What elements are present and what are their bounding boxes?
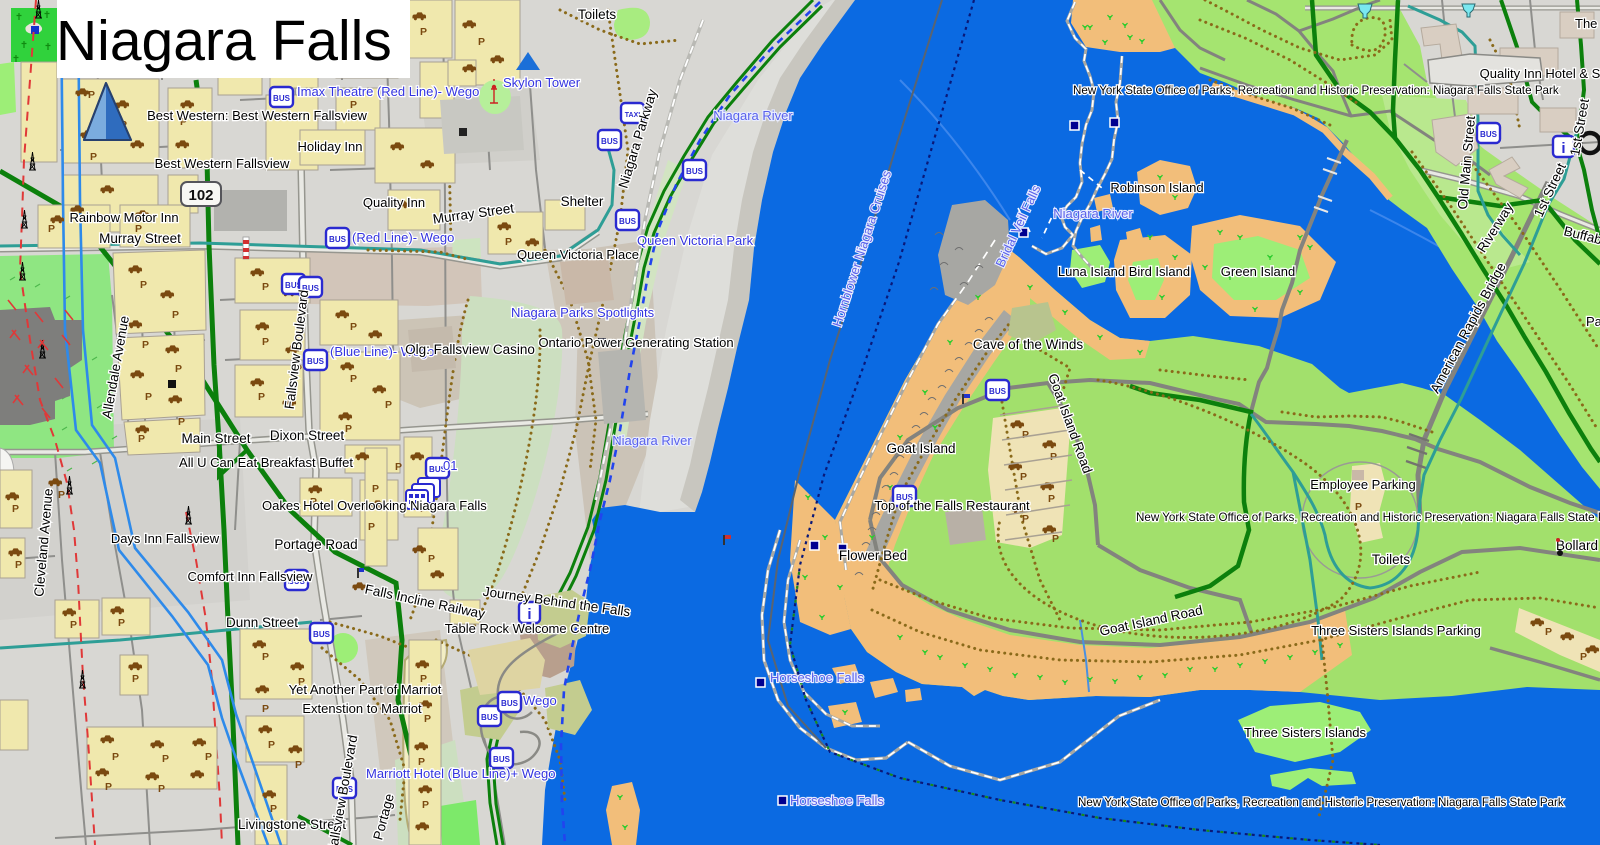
svg-text:Queen Victoria Park: Queen Victoria Park [637,233,754,248]
svg-text:P: P [262,336,269,348]
svg-text:P: P [422,799,429,811]
svg-text:P: P [175,363,182,375]
svg-text:The C: The C [1575,16,1600,31]
svg-text:(Red Line)- Wego: (Red Line)- Wego [352,230,454,245]
svg-text:Rainbow Motor Inn: Rainbow Motor Inn [69,210,178,225]
svg-text:Holiday Inn: Holiday Inn [297,139,362,154]
svg-text:P: P [138,433,145,445]
svg-text:P: P [1580,651,1587,663]
svg-text:Marriott Hotel (Blue Line)+ We: Marriott Hotel (Blue Line)+ Wego [366,766,555,781]
svg-text:Yet Another Part of Marriot: Yet Another Part of Marriot [289,682,442,697]
svg-text:Extenstion to Marriot: Extenstion to Marriot [302,701,422,716]
svg-text:P: P [1020,471,1027,483]
svg-text:i: i [1561,140,1565,157]
svg-text:New York State Office of Parks: New York State Office of Parks, Recreati… [1136,511,1600,524]
svg-text:P: P [350,321,357,333]
svg-text:Toilets: Toilets [578,7,617,22]
svg-text:Quality Inn Hotel & S: Quality Inn Hotel & S [1480,66,1600,81]
svg-text:Dunn Street: Dunn Street [226,615,298,630]
svg-text:P: P [258,391,265,403]
svg-text:Comfort Inn Fallsview: Comfort Inn Fallsview [188,569,314,584]
svg-text:Toilets: Toilets [1372,552,1411,567]
svg-text:Oakes Hotel Overlooking Niagar: Oakes Hotel Overlooking Niagara Falls [262,498,487,513]
svg-text:Imax Theatre (Red Line)- Wego: Imax Theatre (Red Line)- Wego [297,84,479,99]
svg-text:P: P [158,783,165,795]
svg-text:P: P [142,339,149,351]
svg-text:New York State Office of Parks: New York State Office of Parks, Recreati… [1073,84,1559,97]
svg-text:Three Sisters Islands Parking: Three Sisters Islands Parking [1311,623,1481,638]
svg-text:Portage Road: Portage Road [274,537,357,552]
svg-text:P: P [58,489,65,501]
svg-text:P: P [478,36,485,48]
svg-text:P: P [15,559,22,571]
svg-text:Horseshoe Falls: Horseshoe Falls [790,793,884,808]
svg-text:Bollard: Bollard [1556,538,1598,553]
svg-text:P: P [262,281,269,293]
svg-text:P: P [295,759,302,771]
svg-text:P: P [178,416,185,428]
svg-text:Robinson Island: Robinson Island [1110,180,1203,195]
svg-text:Niagara Falls: Niagara Falls [56,9,392,73]
svg-text:Niagara River: Niagara River [1053,206,1133,221]
svg-text:Top of the Falls Restaurant: Top of the Falls Restaurant [874,498,1030,513]
svg-text:P: P [1052,533,1059,545]
svg-text:P: P [162,753,169,765]
svg-text:P: P [505,236,512,248]
svg-text:P: P [88,89,95,101]
svg-text:Shelter: Shelter [561,194,604,209]
svg-text:All U Can Eat Breakfast Buffet: All U Can Eat Breakfast Buffet [179,455,353,470]
svg-text:P: P [70,619,77,631]
svg-text:P: P [1048,493,1055,505]
svg-text:Main Street: Main Street [181,431,250,446]
svg-text:P: P [424,713,431,725]
svg-text:P: P [345,423,352,435]
svg-text:Niagara River: Niagara River [713,108,793,123]
svg-text:Queen Victoria Place: Queen Victoria Place [517,247,639,262]
svg-text:P: P [105,781,112,793]
svg-text:Olg: Fallsview Casino: Olg: Fallsview Casino [405,342,535,357]
svg-text:P: P [172,309,179,321]
svg-text:P: P [12,503,19,515]
svg-text:Best Western: Best Western Fal: Best Western: Best Western Fallsview [147,108,367,123]
svg-text:P: P [132,673,139,685]
svg-text:Green Island: Green Island [1221,264,1295,279]
svg-text:P: P [385,399,392,411]
svg-text:Pa: Pa [1586,314,1600,329]
svg-text:P: P [270,803,277,815]
svg-text:P: P [395,461,402,473]
svg-text:P: P [140,279,147,291]
svg-text:P: P [48,223,55,235]
svg-text:P: P [350,373,357,385]
svg-text:Three Sisters Islands: Three Sisters Islands [1244,725,1367,740]
svg-text:Best Western Fallsview: Best Western Fallsview [155,156,290,171]
svg-text:102: 102 [188,187,213,204]
svg-text:Skylon Tower: Skylon Tower [503,75,581,90]
svg-text:P: P [90,151,97,163]
svg-text:New York State Office of Parks: New York State Office of Parks, Recreati… [1078,796,1564,809]
svg-text:P: P [372,483,379,495]
svg-text:P: P [428,553,435,565]
svg-text:Horseshoe Falls: Horseshoe Falls [770,670,864,685]
svg-text:01: 01 [443,458,457,473]
svg-text:P: P [1545,626,1552,638]
svg-text:Ontario Power Generating Stati: Ontario Power Generating Station [538,335,733,350]
svg-text:P: P [420,26,427,38]
svg-text:P: P [1022,513,1029,525]
svg-text:P: P [268,739,275,751]
svg-text:Days Inn Fallsview: Days Inn Fallsview [111,531,220,546]
svg-text:Goat Island: Goat Island [886,441,955,456]
svg-text:Flower Bed: Flower Bed [839,548,907,563]
svg-text:P: P [368,521,375,533]
svg-text:P: P [262,703,269,715]
svg-text:Niagara Parks Spotlights: Niagara Parks Spotlights [511,305,655,320]
svg-text:Dixon Street: Dixon Street [270,428,345,443]
svg-text:Luna Island Bird Island: Luna Island Bird Island [1058,264,1190,279]
svg-text:P: P [112,751,119,763]
svg-text:P: P [262,651,269,663]
svg-text:Employee Parking: Employee Parking [1310,477,1416,492]
svg-text:Cave of the Winds: Cave of the Winds [973,337,1084,352]
svg-text:P: P [118,617,125,629]
svg-text:Niagara River: Niagara River [612,433,692,448]
svg-text:P: P [1022,429,1029,441]
svg-text:P: P [145,391,152,403]
svg-text:Quality Inn: Quality Inn [363,195,425,210]
svg-text:Wego: Wego [523,693,557,708]
svg-text:Table Rock Welcome Centre: Table Rock Welcome Centre [445,621,610,636]
svg-text:P: P [205,751,212,763]
svg-text:Murray Street: Murray Street [99,231,181,246]
